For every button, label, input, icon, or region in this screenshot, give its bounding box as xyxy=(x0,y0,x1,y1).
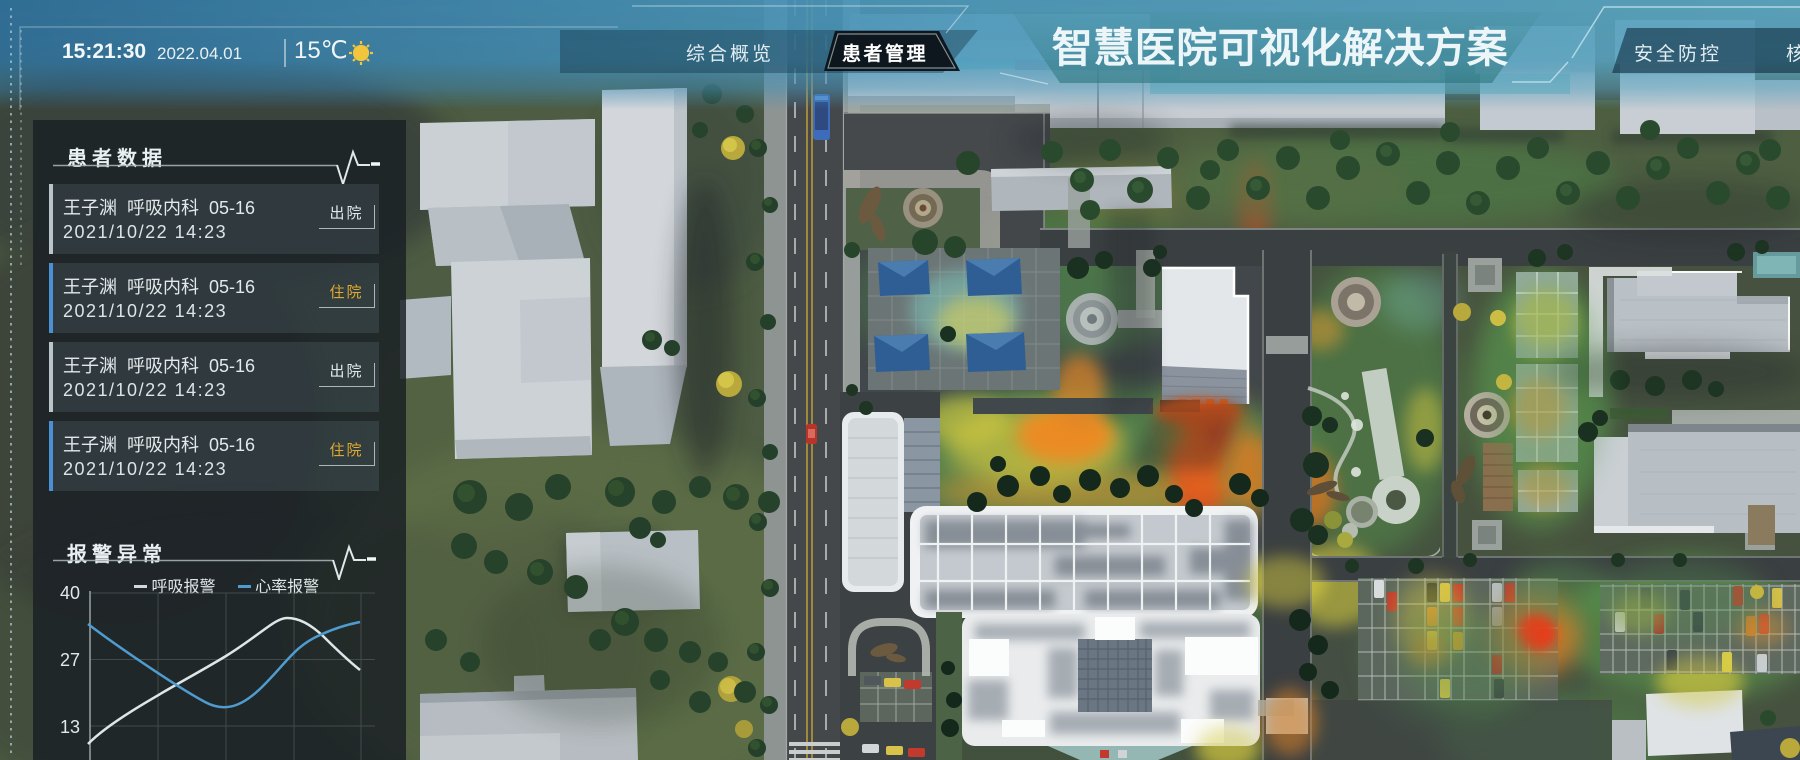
svg-text:40: 40 xyxy=(60,583,80,603)
svg-text:27: 27 xyxy=(60,650,80,670)
svg-text:13: 13 xyxy=(60,717,80,737)
